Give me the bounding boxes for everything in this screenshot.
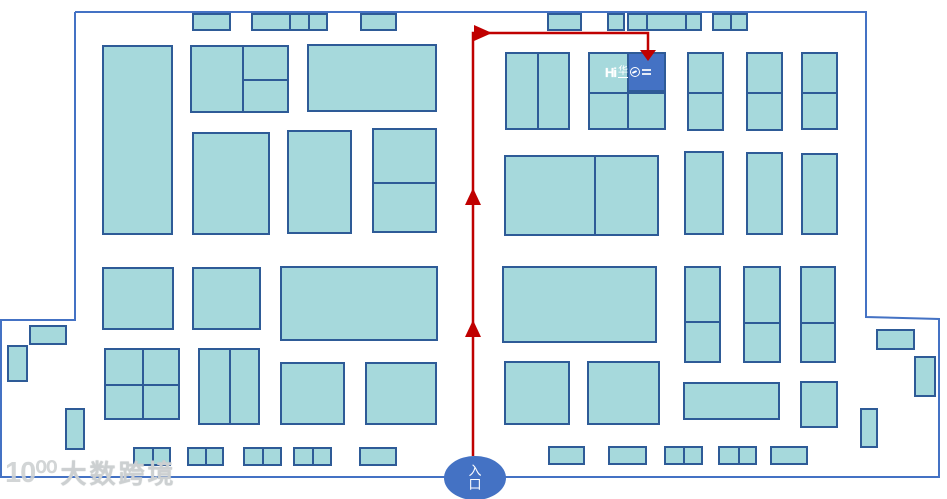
booth — [860, 408, 878, 448]
booth-divider — [802, 322, 834, 324]
booth — [502, 266, 657, 343]
booth — [548, 446, 585, 465]
booth-divider — [229, 350, 231, 423]
booth — [800, 381, 838, 428]
booth-divider — [745, 322, 779, 324]
booth — [287, 130, 352, 234]
booth — [800, 266, 836, 363]
booth-divider — [730, 15, 732, 29]
booth-divider — [205, 449, 207, 464]
booth-divider — [106, 384, 178, 386]
destination-logo-fineprint — [642, 69, 651, 75]
entrance-label: 入口 — [468, 464, 483, 492]
booth — [280, 362, 345, 425]
booth-divider — [590, 92, 664, 94]
booth-divider — [594, 157, 596, 234]
booth-divider — [308, 15, 310, 29]
booth — [770, 446, 808, 465]
booth — [198, 348, 260, 425]
booth — [29, 325, 67, 345]
booth-divider — [685, 15, 687, 29]
booth-divider — [262, 449, 264, 464]
booth-divider — [738, 448, 740, 463]
booth — [746, 52, 783, 131]
booth — [102, 267, 174, 330]
booth — [684, 266, 721, 363]
booth — [65, 408, 85, 450]
booth — [104, 348, 180, 420]
booth — [914, 356, 936, 397]
booth — [547, 13, 582, 31]
booth — [359, 447, 397, 466]
booth — [102, 45, 173, 235]
booth — [587, 361, 660, 425]
booth — [505, 52, 570, 130]
globe-icon — [630, 67, 640, 77]
booth-divider — [289, 15, 291, 29]
watermark: 10⁰⁰ 大数跨境 — [5, 458, 177, 490]
booth-divider — [242, 79, 289, 81]
booth — [360, 13, 397, 31]
booth — [187, 447, 224, 466]
booth — [627, 13, 702, 31]
booth — [743, 266, 781, 363]
booth-divider — [689, 92, 722, 94]
booth-divider — [683, 448, 685, 463]
booth — [251, 13, 328, 31]
booth-layer — [0, 0, 947, 499]
booth-divider — [748, 92, 781, 94]
booth — [712, 13, 748, 31]
booth — [876, 329, 915, 350]
destination-logo-name: 华 — [618, 66, 628, 78]
booth — [683, 382, 780, 420]
booth — [718, 446, 757, 465]
booth-divider — [803, 92, 836, 94]
booth — [190, 45, 289, 113]
booth — [372, 128, 437, 233]
exhibition-floor-map: Hi 华 入口 10⁰⁰ 大数跨境 — [0, 0, 947, 499]
booth — [684, 151, 724, 235]
watermark-logo: 10⁰⁰ — [5, 458, 57, 488]
entrance-marker: 入口 — [444, 456, 506, 499]
booth-divider — [537, 54, 539, 128]
booth — [7, 345, 28, 382]
booth — [192, 13, 231, 31]
booth — [746, 152, 783, 235]
booth — [504, 155, 659, 236]
booth-divider — [686, 321, 719, 323]
booth-divider — [374, 182, 435, 184]
booth — [365, 362, 437, 425]
booth — [280, 266, 438, 341]
booth — [307, 44, 437, 112]
booth — [504, 361, 570, 425]
booth — [192, 132, 270, 235]
destination-logo-prefix: Hi — [605, 65, 616, 80]
booth — [607, 13, 625, 31]
booth-divider — [312, 449, 314, 464]
booth — [801, 52, 838, 130]
booth — [293, 447, 332, 466]
destination-logo: Hi 华 — [605, 63, 651, 81]
watermark-text: 大数跨境 — [61, 458, 177, 490]
booth — [687, 52, 724, 131]
booth — [243, 447, 282, 466]
booth — [608, 446, 647, 465]
booth — [192, 267, 261, 330]
booth — [801, 153, 838, 235]
booth — [664, 446, 703, 465]
booth-divider — [646, 15, 648, 29]
